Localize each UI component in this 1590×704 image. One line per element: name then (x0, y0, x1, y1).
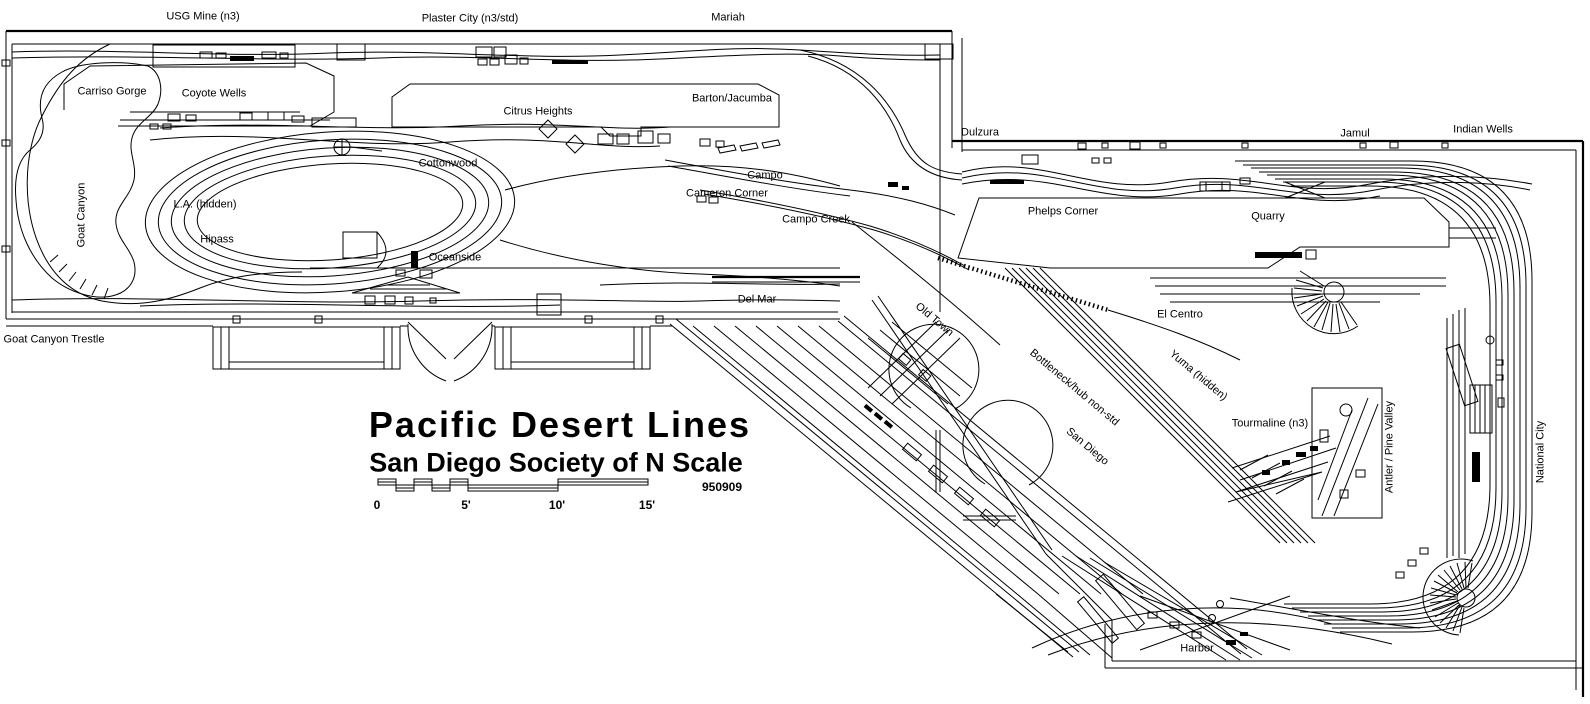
scale-tick-2: 10' (549, 498, 565, 512)
scale-bar-ticks: 05'10'15' (0, 0, 1590, 704)
scale-tick-1: 5' (461, 498, 471, 512)
scale-tick-3: 15' (639, 498, 655, 512)
scale-tick-0: 0 (374, 498, 381, 512)
track-plan: USG Mine (n3)Plaster City (n3/std)Mariah… (0, 0, 1590, 704)
